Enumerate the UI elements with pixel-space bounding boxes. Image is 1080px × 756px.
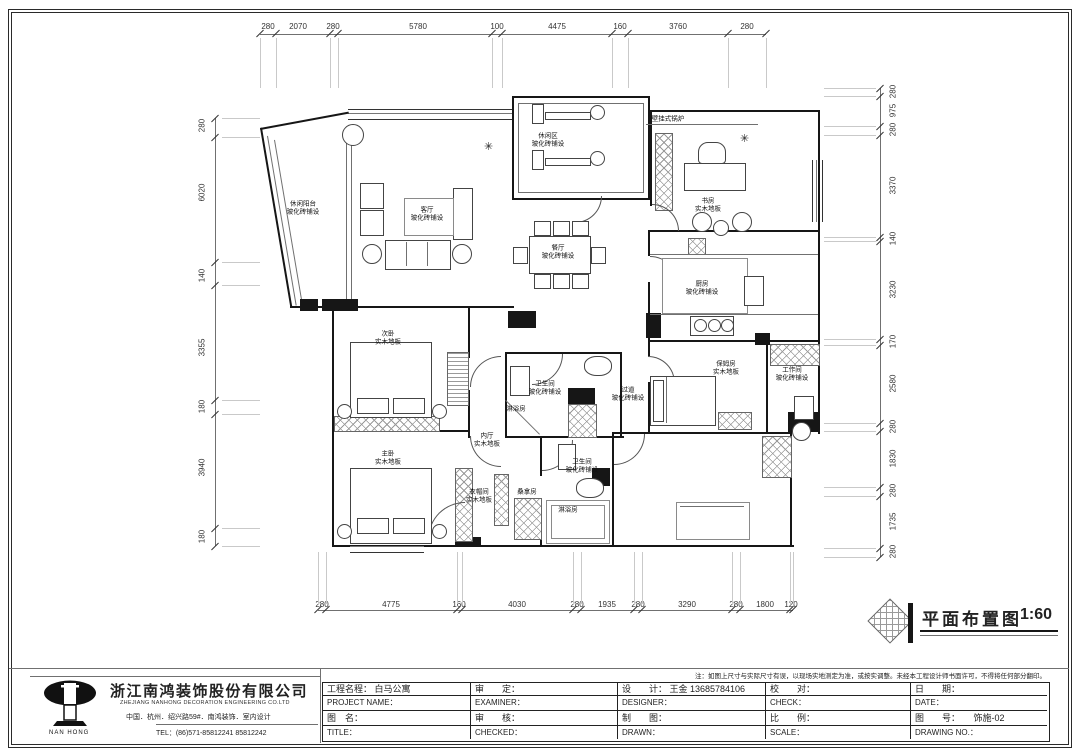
wall: [512, 96, 514, 200]
extension-line: [222, 528, 260, 529]
room-name: 厨房: [686, 281, 719, 289]
company-logo-text: NAN HONG: [49, 730, 89, 736]
room-name: 过道: [612, 387, 645, 395]
guest-chair: [732, 212, 752, 232]
wall: [505, 436, 624, 438]
room-label: 过道玻化砖铺设: [612, 387, 645, 402]
dimension-label: 3355: [198, 328, 207, 368]
gym-machine: [532, 104, 544, 124]
dining-chair: [534, 274, 551, 289]
extension-line: [824, 126, 876, 127]
burner: [721, 319, 734, 332]
room-name: 淋浴房: [506, 405, 526, 413]
nightstand: [432, 404, 447, 419]
room-label: 工作间玻化砖铺设: [776, 367, 809, 382]
room-floor-finish: 玻化砖铺设: [776, 374, 809, 382]
burner: [694, 319, 707, 332]
titleblock-cell: 图 号： 饰施-02: [911, 711, 1047, 726]
sliding-door: [346, 130, 347, 306]
room-name: 餐厅: [542, 245, 575, 253]
leader-line: [646, 124, 758, 125]
dimension-label: 280: [727, 22, 767, 31]
wall-line: [643, 103, 644, 193]
room-name: 内厅: [474, 433, 500, 441]
company-name-en: ZHEJIANG NANHONG DECORATION ENGINEERING …: [120, 700, 290, 706]
room-floor-finish: 实木地板: [466, 496, 492, 504]
room-label: 卫生间玻化砖铺设: [566, 459, 599, 474]
extension-line: [612, 38, 613, 88]
room-floor-finish: 玻化砖铺设: [542, 252, 575, 260]
dim-line-bottom: [318, 610, 793, 611]
cabinet-hatch: [762, 436, 792, 478]
titleblock-cell: DRAWN：: [618, 726, 766, 739]
room-name: 主卧: [375, 451, 401, 459]
extension-line: [824, 237, 876, 238]
nightstand: [432, 524, 447, 539]
extension-line: [824, 423, 876, 424]
titleblock-cell: 制 图：: [618, 711, 766, 726]
titleblock-cell: DATE：: [911, 696, 1047, 711]
company-block: NAN HONG 浙江南鸿装饰股份有限公司 ZHEJIANG NANHONG D…: [36, 678, 318, 744]
dimension-label: 2580: [889, 364, 898, 404]
titleblock-cell: CHECK：: [766, 696, 911, 711]
dimension-label: 6020: [198, 173, 207, 213]
room-label: 内厅实木地板: [474, 433, 500, 448]
dimension-label: 5780: [398, 22, 438, 31]
ceiling-fan-symbol: ✳: [484, 142, 493, 153]
balcony-rail: [274, 140, 303, 304]
wall: [505, 352, 507, 438]
titleblock-cell: PROJECT NAME：: [323, 696, 471, 711]
room-name: 工作间: [776, 367, 809, 375]
balcony-rail: [267, 136, 297, 306]
counter-line: [650, 314, 818, 315]
wall: [650, 110, 820, 112]
stamp-underline: [920, 630, 1058, 632]
wall: [648, 342, 650, 356]
dimension-label: 3370: [889, 166, 898, 206]
pillow: [393, 518, 425, 534]
door-arc: [470, 356, 501, 387]
armchair: [360, 183, 384, 209]
titleblock-cell: 工程名程： 白马公寓: [323, 683, 471, 696]
room-floor-finish: 玻化砖铺设: [566, 466, 599, 474]
dimension-label: 140: [889, 219, 898, 259]
dimension-label: 140: [198, 256, 207, 296]
dining-chair: [572, 274, 589, 289]
titleblock-cell: EXAMINER：: [471, 696, 618, 711]
extension-line: [222, 118, 260, 119]
room-label: 桑拿房: [517, 488, 537, 496]
dimension-label: 4030: [497, 600, 537, 609]
sauna-hatch: [514, 498, 542, 540]
room-floor-finish: 实木地板: [713, 368, 739, 376]
room-name: 书房: [695, 198, 721, 206]
gym-machine: [545, 158, 591, 166]
room-label: 休闲阳台玻化砖铺设: [287, 201, 320, 216]
dimension-label: 280: [198, 106, 207, 146]
room-name: 休闲阳台: [287, 201, 320, 209]
extension-line: [824, 339, 876, 340]
wall: [818, 110, 820, 434]
titleblock-cell: 设 计： 王金 13685784106: [618, 683, 766, 696]
room-label: 休闲区玻化砖铺设: [532, 133, 565, 148]
ceiling-fan-symbol: ✳: [740, 134, 749, 145]
extension-line: [573, 552, 574, 604]
dimension-label: 180: [198, 387, 207, 427]
bookshelf-hatch: [655, 133, 673, 211]
extension-line: [824, 88, 876, 89]
extension-line: [222, 546, 260, 547]
room-label: 保姆房实木地板: [713, 361, 739, 376]
extension-line: [793, 552, 794, 604]
small-table: [713, 220, 729, 236]
room-label: 客厅玻化砖铺设: [411, 207, 444, 222]
armchair: [360, 210, 384, 236]
dim-line-left: [215, 118, 216, 546]
window: [348, 109, 512, 120]
titleblock-cell: CHECKED：: [471, 726, 618, 739]
extension-line: [824, 496, 876, 497]
wash-basin: [510, 366, 530, 396]
sheet-note: 注：如图上尺寸与实际尺寸有误，以现场实地测定为准，或按实调整。未经本工程设计师书…: [480, 670, 1046, 680]
wardrobe-hatch: [334, 416, 440, 432]
bathtub: [676, 502, 750, 540]
room-label: 淋浴房: [506, 405, 526, 413]
room-name: 次卧: [375, 331, 401, 339]
room-name: 卫生间: [529, 381, 562, 389]
stamp-underline-thin: [920, 635, 1058, 636]
column-fill: [300, 299, 318, 311]
extension-line: [824, 96, 876, 97]
dimension-label: 3290: [667, 600, 707, 609]
dimension-label: 280: [618, 600, 658, 609]
company-address: 中国．杭州．绍兴路59#．南鸿装饰．室内设计: [126, 712, 271, 722]
titlebar-divider: [9, 668, 1069, 669]
wall: [648, 230, 650, 256]
extension-line: [492, 38, 493, 88]
extension-line: [462, 552, 463, 604]
door-arc: [652, 204, 679, 231]
room-name: 休闲区: [532, 133, 565, 141]
dimension-label: 4775: [371, 600, 411, 609]
extension-line: [824, 548, 876, 549]
gym-machine: [545, 112, 591, 120]
extension-line: [824, 431, 876, 432]
titleblock-cell: DESIGNER：: [618, 696, 766, 711]
dining-chair: [553, 274, 570, 289]
shoe-cabinet: [447, 352, 469, 406]
wash-basin: [794, 396, 814, 420]
dining-chair: [591, 247, 606, 264]
guest-chair: [692, 212, 712, 232]
wall: [332, 306, 514, 308]
titleblock-cell: TITLE：: [323, 726, 471, 739]
room-floor-finish: 玻化砖铺设: [529, 388, 562, 396]
titleblock-cell: 比 例：: [766, 711, 911, 726]
extension-line: [642, 552, 643, 604]
extension-line: [824, 241, 876, 242]
extension-line: [326, 552, 327, 604]
titleblock-cell: 校 对：: [766, 683, 911, 696]
gym-machine: [590, 151, 605, 166]
titlebar-vdivider: [320, 668, 321, 743]
wall: [468, 306, 470, 358]
room-label: 主卧实木地板: [375, 451, 401, 466]
wardrobe-hatch: [494, 474, 509, 526]
dining-chair: [534, 221, 551, 236]
cabinet-hatch: [568, 404, 597, 438]
titleblock-cell: 图 名：: [323, 711, 471, 726]
door-arc: [614, 434, 645, 465]
dimension-label: 4475: [537, 22, 577, 31]
dimension-label: 3230: [889, 270, 898, 310]
column-fill: [322, 299, 358, 311]
column-fill: [508, 311, 536, 328]
extension-line: [728, 38, 729, 88]
titleblock-cell: 审 定：: [471, 683, 618, 696]
column-fill: [755, 333, 770, 345]
gym-machine: [590, 105, 605, 120]
sofa: [385, 240, 451, 270]
dimension-label: 3760: [658, 22, 698, 31]
wall: [512, 96, 650, 98]
company-line: [156, 724, 318, 725]
toilet: [584, 356, 612, 376]
room-floor-finish: 玻化砖铺设: [411, 214, 444, 222]
room-floor-finish: 玻化砖铺设: [532, 140, 565, 148]
extension-line: [222, 262, 260, 263]
room-floor-finish: 实木地板: [474, 440, 500, 448]
wall-line: [518, 103, 519, 193]
room-floor-finish: 玻化砖铺设: [287, 208, 320, 216]
room-floor-finish: 玻化砖铺设: [612, 394, 645, 402]
washing-machine: [792, 422, 811, 441]
dining-chair: [513, 247, 528, 264]
extension-line: [634, 552, 635, 604]
extension-line: [790, 552, 791, 604]
dimension-label: 3940: [198, 448, 207, 488]
company-tel: TEL：(86)571-85812241 85812242: [156, 728, 267, 738]
titleblock-cell: 日 期：: [911, 683, 1047, 696]
desk-chair: [698, 142, 726, 164]
plan-title-stamp: 平面布置图 1:60: [870, 600, 1058, 646]
toilet: [576, 478, 604, 498]
bathtub-line: [680, 506, 744, 507]
dimension-label: 280: [302, 600, 342, 609]
dining-chair: [553, 221, 570, 236]
wall-line: [518, 192, 644, 193]
cabinet-hatch: [770, 344, 820, 366]
extension-line: [740, 552, 741, 604]
bed-line: [666, 377, 667, 423]
annotation-label: 壁挂式锅炉: [652, 115, 685, 123]
plant-column: [342, 124, 364, 146]
room-label: 卫生间玻化砖铺设: [529, 381, 562, 396]
room-name: 桑拿房: [517, 488, 537, 496]
titleblock-cell: 审 核：: [471, 711, 618, 726]
room-floor-finish: 玻化砖铺设: [686, 288, 719, 296]
extension-line: [628, 38, 629, 88]
room-label: 餐厅玻化砖铺设: [542, 245, 575, 260]
wall: [260, 112, 349, 130]
room-name: 淋浴房: [558, 506, 578, 514]
tv-cabinet: [453, 188, 473, 240]
extension-line: [824, 557, 876, 558]
dimension-label: 160: [600, 22, 640, 31]
room-floor-finish: 实木地板: [375, 338, 401, 346]
gym-machine: [532, 150, 544, 170]
extension-line: [502, 38, 503, 88]
extension-line: [766, 38, 767, 88]
extension-line: [222, 137, 260, 138]
counter-line: [650, 254, 818, 255]
sofa-seam: [406, 242, 407, 266]
room-name: 衣帽间: [466, 489, 492, 497]
room-floor-finish: 实木地板: [375, 458, 401, 466]
stamp-icon-bar: [908, 603, 913, 643]
column-fill: [568, 388, 595, 404]
sliding-door: [351, 130, 352, 306]
sink: [744, 276, 764, 306]
titleblock-cell: SCALE：: [766, 726, 911, 739]
dimension-label: 170: [889, 322, 898, 362]
wall: [505, 352, 622, 354]
room-label: 衣帽间实木地板: [466, 489, 492, 504]
extension-line: [260, 38, 261, 88]
dimension-label: 180: [198, 517, 207, 557]
company-logo: NAN HONG: [42, 680, 102, 742]
side-table: [452, 244, 472, 264]
extension-line: [330, 38, 331, 88]
extension-line: [222, 414, 260, 415]
company-box-line: [30, 676, 320, 677]
extension-line: [276, 38, 277, 88]
dining-chair: [572, 221, 589, 236]
room-floor-finish: 实木地板: [695, 205, 721, 213]
pillow: [653, 380, 664, 422]
extension-line: [824, 487, 876, 488]
room-label: 厨房玻化砖铺设: [686, 281, 719, 296]
room-label: 次卧实木地板: [375, 331, 401, 346]
extension-line: [338, 38, 339, 88]
extension-line: [457, 552, 458, 604]
sofa-seam: [427, 242, 428, 266]
window: [812, 160, 823, 222]
pillow: [357, 518, 389, 534]
cabinet-hatch: [718, 412, 752, 430]
wall: [766, 342, 768, 432]
room-label: 淋浴房: [558, 506, 578, 514]
extension-line: [222, 285, 260, 286]
pillow: [393, 398, 425, 414]
stamp-title: 平面布置图: [922, 605, 1022, 630]
extension-line: [222, 400, 260, 401]
column-fill: [646, 313, 661, 338]
dimension-label: 280: [889, 110, 898, 150]
room-label: 书房实木地板: [695, 198, 721, 213]
room-name: 客厅: [411, 207, 444, 215]
extension-line: [824, 345, 876, 346]
dimension-label: 2070: [278, 22, 318, 31]
nightstand: [337, 404, 352, 419]
nightstand: [337, 524, 352, 539]
extension-line: [318, 552, 319, 604]
dimension-label: 100: [477, 22, 517, 31]
dimension-label: 280: [889, 532, 898, 572]
company-name: 浙江南鸿装饰股份有限公司: [110, 680, 308, 701]
side-table: [362, 244, 382, 264]
extension-line: [581, 552, 582, 604]
cabinet-hatch: [688, 238, 706, 255]
desk: [684, 163, 746, 191]
extension-line: [824, 135, 876, 136]
extension-line: [732, 552, 733, 604]
pillow: [357, 398, 389, 414]
stamp-scale: 1:60: [1020, 606, 1052, 624]
room-name: 保姆房: [713, 361, 739, 369]
wall: [648, 340, 820, 342]
titleblock-cell: DRAWING NO.：: [911, 726, 1047, 739]
stamp-icon: [867, 598, 912, 643]
room-name: 卫生间: [566, 459, 599, 467]
titleblock-table: 工程名程： 白马公寓审 定：设 计： 王金 13685784106校 对：日 期…: [322, 682, 1050, 742]
burner: [708, 319, 721, 332]
door-arc: [575, 196, 602, 223]
